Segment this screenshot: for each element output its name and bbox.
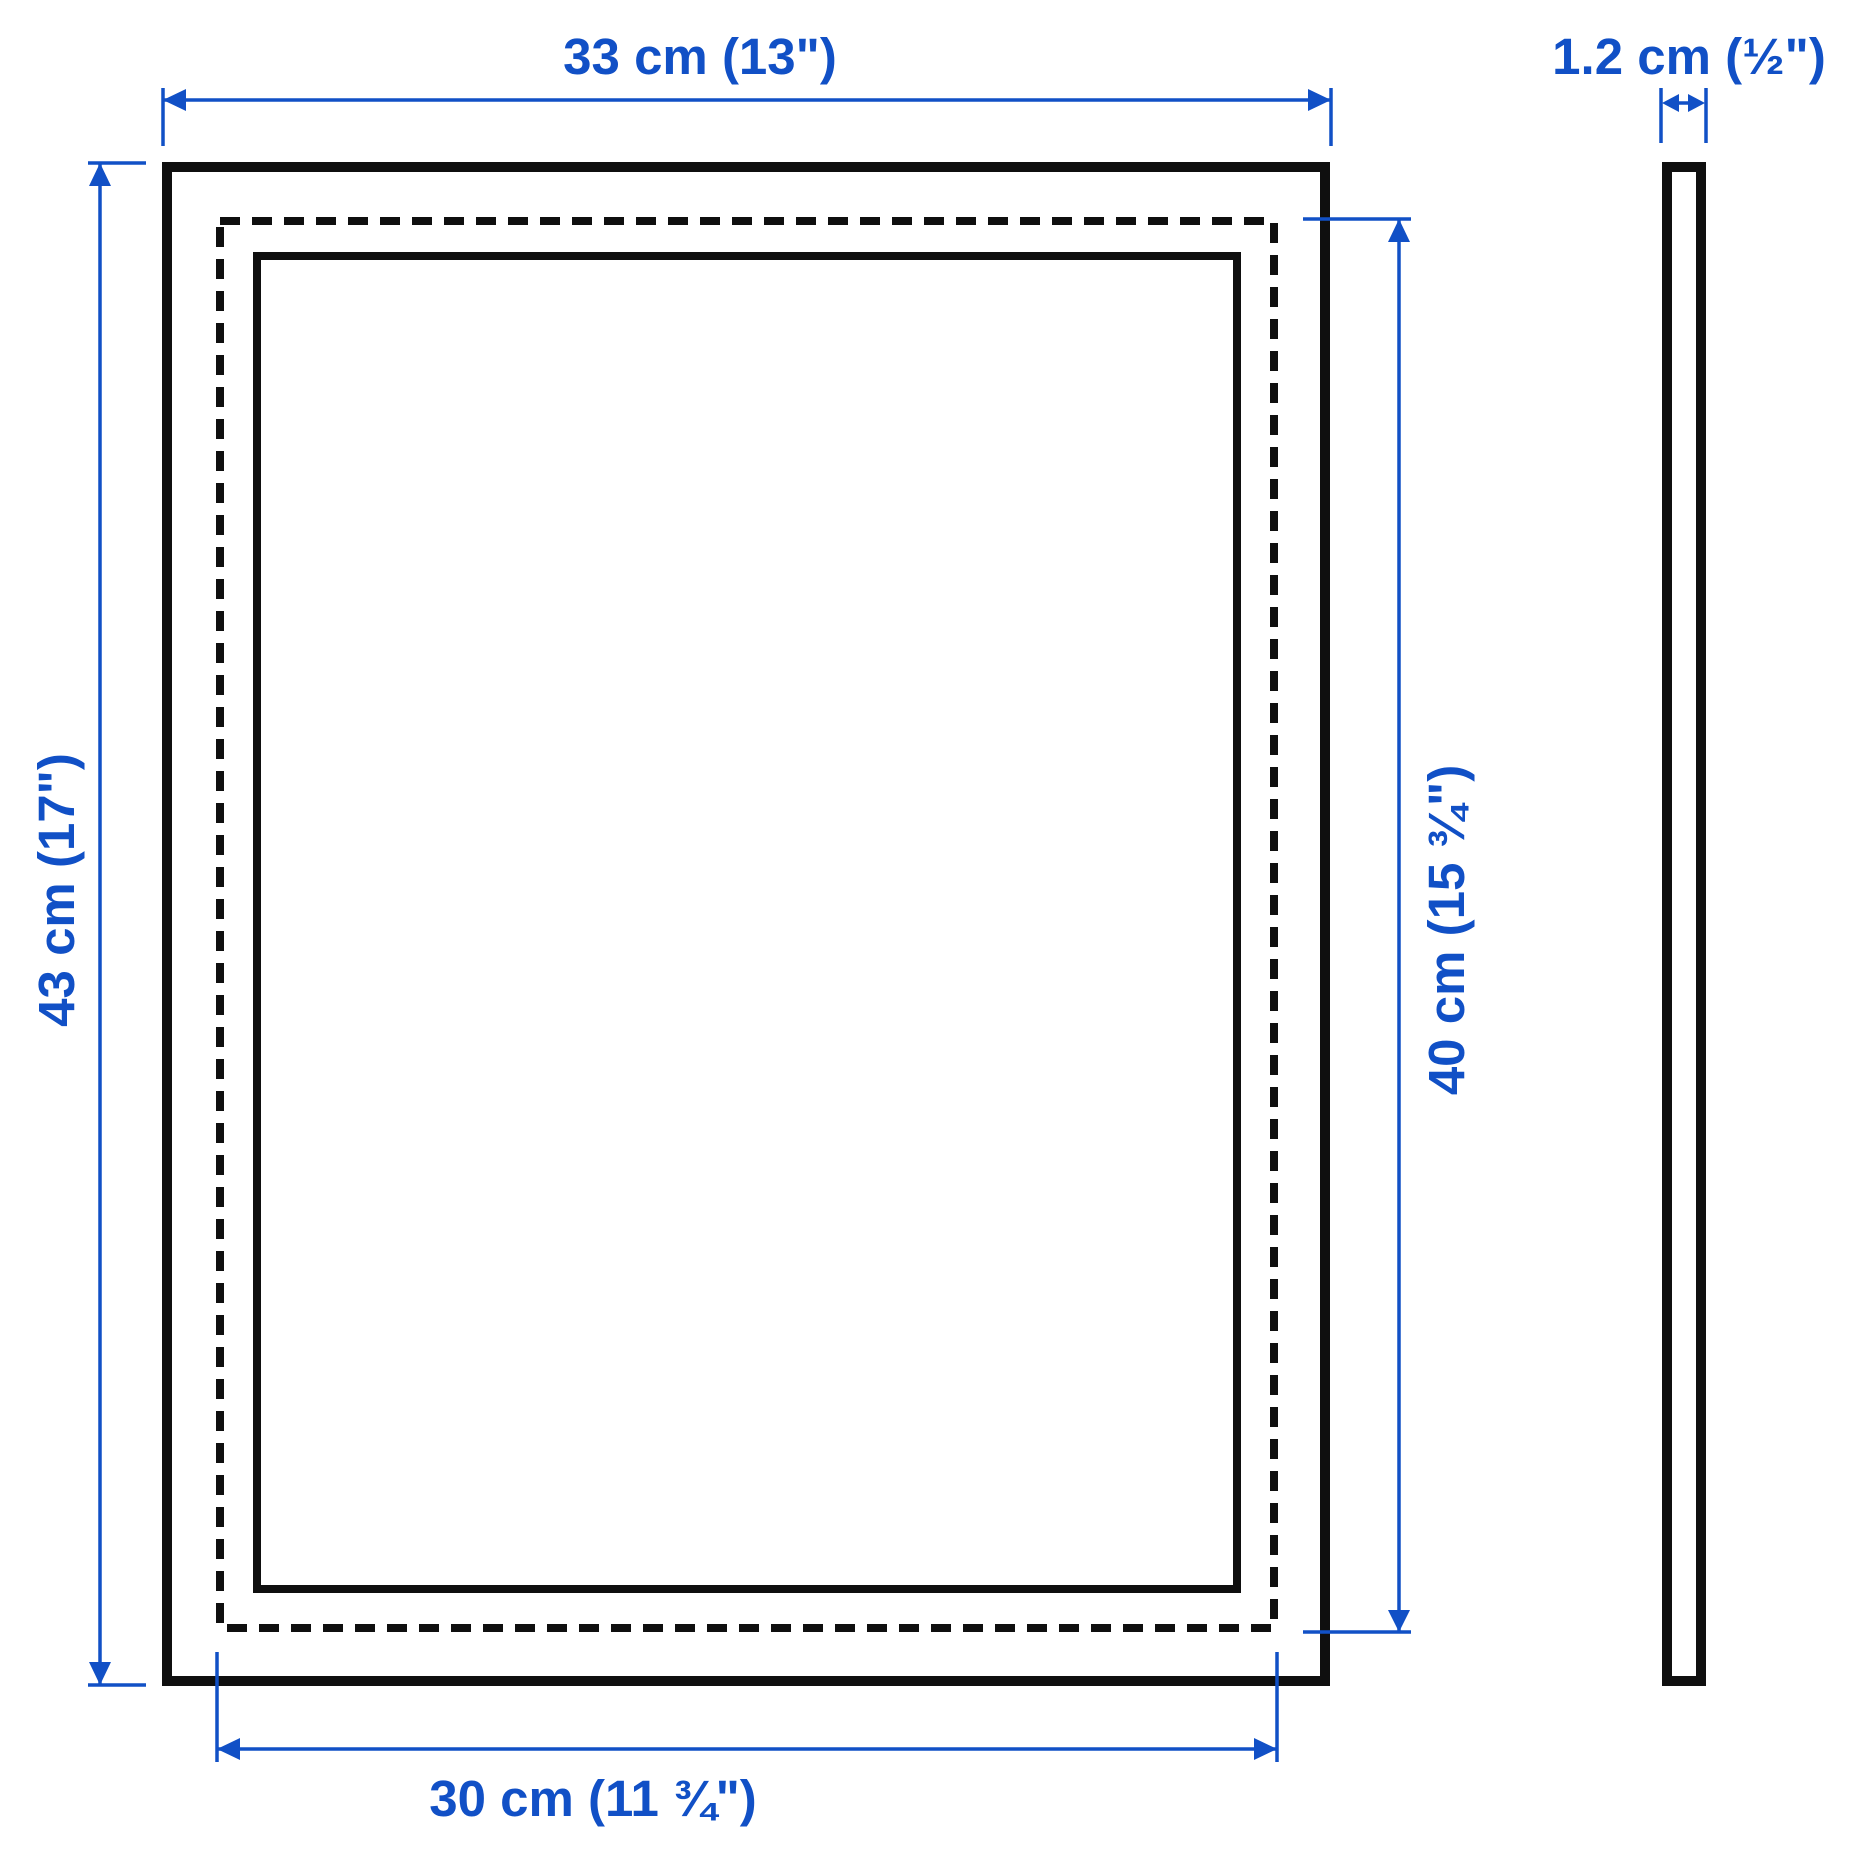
frame-height-dimension xyxy=(88,163,146,1685)
frame-depth-dimension xyxy=(1661,88,1706,143)
arrow-up-icon xyxy=(89,163,111,186)
side-profile-outline xyxy=(1667,167,1701,1681)
arrow-left-icon xyxy=(163,89,186,111)
frame-width-label: 33 cm (13") xyxy=(563,29,837,85)
arrow-down-icon xyxy=(1388,1610,1410,1632)
diagram-drawing xyxy=(0,0,1860,1860)
picture-width-dimension xyxy=(217,1652,1277,1762)
arrow-right-icon xyxy=(1688,94,1705,112)
picture-size-dashed-outline xyxy=(220,221,1274,1628)
picture-height-dimension xyxy=(1303,219,1411,1632)
picture-height-label: 40 cm (15 ¾") xyxy=(1419,765,1475,1095)
arrow-right-icon xyxy=(1308,89,1331,111)
arrow-left-icon xyxy=(1662,94,1679,112)
picture-width-label: 30 cm (11 ¾") xyxy=(429,1771,757,1827)
frame-width-dimension xyxy=(163,88,1331,146)
frame-depth-label: 1.2 cm (½") xyxy=(1552,29,1826,85)
arrow-left-icon xyxy=(217,1738,240,1760)
dimension-diagram: 33 cm (13") 1.2 cm (½") 43 cm (17") 40 c… xyxy=(0,0,1860,1860)
frame-height-label: 43 cm (17") xyxy=(29,753,85,1027)
front-view xyxy=(167,167,1325,1681)
side-view xyxy=(1667,167,1701,1681)
frame-outer-outline xyxy=(167,167,1325,1681)
frame-opening-outline xyxy=(257,256,1237,1589)
arrow-up-icon xyxy=(1388,219,1410,242)
arrow-right-icon xyxy=(1254,1738,1277,1760)
arrow-down-icon xyxy=(89,1662,111,1685)
